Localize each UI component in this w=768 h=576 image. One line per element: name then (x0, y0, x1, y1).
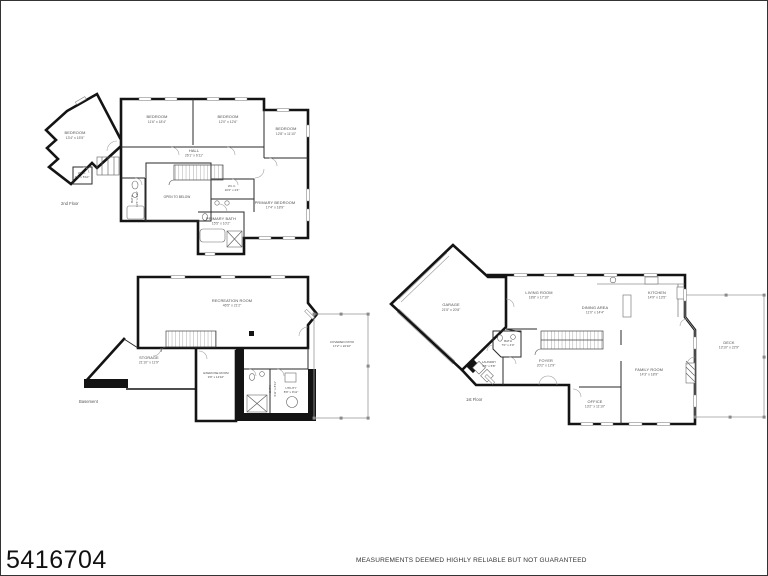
floor-plan-basement: RECREATION ROOM 46'5" x 21'2" STORAGE 21… (71, 267, 371, 437)
svg-text:DINING AREA: DINING AREA (582, 305, 609, 310)
svg-text:FAMILY ROOM: FAMILY ROOM (635, 367, 663, 372)
measurement-disclaimer: MEASUREMENTS DEEMED HIGHLY RELIABLE BUT … (356, 557, 587, 564)
room-label-storage: STORAGE 21'10" x 11'9" (139, 355, 160, 365)
svg-text:4'6" x 5'10": 4'6" x 5'10" (75, 175, 90, 179)
room-label-bath: BATH 11'6" x 4'11" (130, 191, 139, 207)
svg-text:20'2" x 12'9": 20'2" x 12'9" (537, 364, 556, 368)
exterior-walls (84, 277, 317, 421)
svg-text:17'2" x 22'10": 17'2" x 22'10" (333, 344, 351, 348)
room-label-bedroom-3: BEDROOM 12'8" x 11'10" (276, 126, 297, 136)
svg-text:21'5" x 20'8": 21'5" x 20'8" (442, 308, 461, 312)
svg-text:13'10" x 22'9": 13'10" x 22'9" (719, 346, 740, 350)
room-label-recreation-room: RECREATION ROOM 46'5" x 21'2" (212, 298, 252, 308)
svg-text:DECK: DECK (723, 340, 735, 345)
deck-outline (685, 294, 766, 419)
svg-text:BEDROOM: BEDROOM (218, 114, 239, 119)
room-label-deck: DECK 13'10" x 22'9" (719, 340, 740, 350)
svg-text:GARAGE: GARAGE (442, 302, 460, 307)
room-label-open-to-below: OPEN TO BELOW (164, 195, 191, 199)
svg-text:18'8" x 17'10": 18'8" x 17'10" (529, 296, 550, 300)
svg-text:17'4" x 18'9": 17'4" x 18'9" (266, 206, 285, 210)
room-label-kitchen: KITCHEN 14'9" x 13'5" (648, 290, 667, 300)
svg-text:6'5" x 5'8": 6'5" x 5'8" (482, 364, 495, 368)
room-label-bedroom-wing: BEDROOM 13'4" x 15'5" (65, 130, 86, 140)
listing-id: 5416704 (6, 546, 107, 575)
room-label-dining-area: DINING AREA 11'0" x 14'4" (582, 305, 609, 315)
floor-label-basement: Basement (79, 399, 99, 404)
svg-text:8'9" x 9'11": 8'9" x 9'11" (284, 390, 299, 394)
svg-text:46'5" x 21'2": 46'5" x 21'2" (223, 304, 242, 308)
svg-text:14'3" x 18'9": 14'3" x 18'9" (640, 373, 659, 377)
support-post (249, 331, 254, 336)
room-label-bath: BATH 4'11" x 8'11" (268, 381, 277, 397)
svg-text:PRIMARY BATH: PRIMARY BATH (206, 216, 236, 221)
svg-text:LIVING ROOM: LIVING ROOM (525, 290, 552, 295)
room-label-utility: UTILITY 8'9" x 9'11" (284, 386, 299, 394)
room-label-foyer: FOYER 20'2" x 12'9" (537, 358, 556, 368)
room-label-covered-patio: COVERED PATIO 17'2" x 22'10" (330, 340, 355, 348)
room-label-bedroom-2: BEDROOM 12'0" x 12'6" (218, 114, 239, 124)
fireplace (686, 361, 695, 383)
svg-text:13'4" x 15'5": 13'4" x 15'5" (66, 136, 85, 140)
svg-text:BEDROOM: BEDROOM (147, 114, 168, 119)
svg-text:BATH: BATH (268, 385, 272, 393)
svg-text:BATH: BATH (130, 195, 134, 203)
svg-text:11'6" x 4'11": 11'6" x 4'11" (135, 191, 139, 207)
svg-text:OPEN TO BELOW: OPEN TO BELOW (164, 195, 191, 199)
floor-label-1st-floor: 1st Floor (466, 397, 483, 402)
svg-text:7'0" x 4'0": 7'0" x 4'0" (501, 343, 514, 347)
room-label-family-room: FAMILY ROOM 14'3" x 18'9" (635, 367, 663, 377)
svg-text:PRIMARY BEDROOM: PRIMARY BEDROOM (255, 200, 296, 205)
covered-patio-outline (313, 313, 370, 420)
svg-text:14'9" x 13'5": 14'9" x 13'5" (648, 296, 667, 300)
svg-text:12'8" x 11'10": 12'8" x 11'10" (276, 132, 297, 136)
svg-text:FOYER: FOYER (539, 358, 553, 363)
svg-text:13'2" x 11'10": 13'2" x 11'10" (585, 405, 606, 409)
svg-text:BEDROOM: BEDROOM (276, 126, 297, 131)
svg-text:9'9" x 14'10": 9'9" x 14'10" (208, 375, 224, 379)
room-label-wic-small: W.I.C. 4'6" x 5'10" (75, 171, 90, 179)
room-label-bath: BATH 7'0" x 4'0" (501, 339, 514, 347)
room-label-laundry: LAUNDRY 6'5" x 5'8" (482, 360, 496, 368)
room-label-exercise-room: EXERCISE ROOM 9'9" x 14'10" (203, 371, 229, 379)
svg-text:OFFICE: OFFICE (588, 399, 603, 404)
staircase (535, 331, 603, 355)
floor-plan-2nd-floor: BEDROOM 13'4" x 15'5" BEDROOM 11'6" x 18… (31, 81, 331, 266)
floor-label-2nd-floor: 2nd Floor (61, 201, 79, 206)
room-label-hall: HALL 26'1" x 6'11" (185, 148, 204, 158)
staircase (169, 165, 223, 185)
svg-text:26'1" x 6'11": 26'1" x 6'11" (185, 154, 204, 158)
svg-text:STORAGE: STORAGE (139, 355, 159, 360)
svg-text:11'0" x 14'4": 11'0" x 14'4" (586, 311, 605, 315)
room-label-living-room: LIVING ROOM 18'8" x 17'10" (525, 290, 552, 300)
svg-text:15'5" x 10'2": 15'5" x 10'2" (212, 222, 231, 226)
svg-text:KITCHEN: KITCHEN (648, 290, 666, 295)
room-label-wic: W.I.C. 10'2" x 4'4" (225, 184, 240, 192)
room-label-office: OFFICE 13'2" x 11'10" (585, 399, 606, 409)
svg-text:11'6" x 18'4": 11'6" x 18'4" (148, 120, 167, 124)
svg-text:BEDROOM: BEDROOM (65, 130, 86, 135)
svg-text:12'0" x 12'6": 12'0" x 12'6" (219, 120, 238, 124)
svg-text:21'10" x 11'9": 21'10" x 11'9" (139, 361, 160, 365)
svg-text:10'2" x 4'4": 10'2" x 4'4" (225, 188, 240, 192)
room-label-primary-bath: PRIMARY BATH 15'5" x 10'2" (206, 216, 236, 226)
bath-fixtures (247, 372, 267, 412)
floor-plan-sheet: BEDROOM 13'4" x 15'5" BEDROOM 11'6" x 18… (0, 0, 768, 576)
floor-plan-1st-floor: GARAGE 21'5" x 20'8" LIVING ROOM 18'8" x… (389, 237, 768, 449)
svg-text:4'11" x 8'11": 4'11" x 8'11" (273, 381, 277, 397)
svg-text:HALL: HALL (189, 148, 200, 153)
room-label-garage: GARAGE 21'5" x 20'8" (442, 302, 461, 312)
svg-text:RECREATION ROOM: RECREATION ROOM (212, 298, 252, 303)
room-label-bedroom-1: BEDROOM 11'6" x 18'4" (147, 114, 168, 124)
room-label-primary-bedroom: PRIMARY BEDROOM 17'4" x 18'9" (255, 200, 296, 210)
